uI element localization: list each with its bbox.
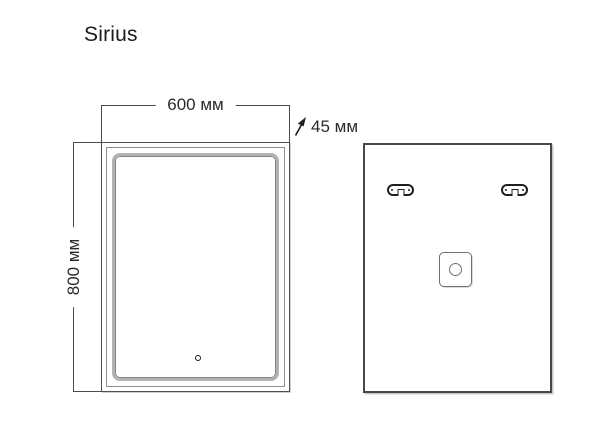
mirror-inner-edge [106,147,285,387]
height-extension-line-top [73,142,101,143]
depth-dimension-label: 45 мм [311,117,358,137]
bracket-keyhole-notch [511,189,518,196]
cable-entry-hole [449,263,462,276]
bracket-screw-dot [408,189,410,191]
mirror-front-view [101,142,290,392]
height-extension-line-bottom [73,391,101,392]
depth-annotation: 45 мм [293,116,358,137]
mounting-bracket-left [387,184,414,196]
led-frame [112,153,279,381]
width-extension-line-left [101,105,102,142]
bracket-screw-dot [505,189,507,191]
width-dimension-label: 600 мм [155,95,235,115]
technical-drawing-canvas: Sirius 600 мм 800 мм 45 мм [0,0,600,435]
mounting-bracket-right [501,184,528,196]
bracket-screw-dot [522,189,524,191]
bracket-screw-dot [391,189,393,191]
bracket-keyhole-notch [397,189,404,196]
mirror-back-view [363,143,552,393]
width-dimension-line: 600 мм [101,105,290,106]
width-extension-line-right [289,105,290,142]
height-dimension-label: 800 мм [64,227,84,307]
depth-arrow-icon [293,116,308,137]
product-title: Sirius [84,23,138,47]
touch-sensor-dot [195,355,201,361]
height-dimension-line: 800 мм [73,142,74,392]
junction-box [439,252,472,287]
